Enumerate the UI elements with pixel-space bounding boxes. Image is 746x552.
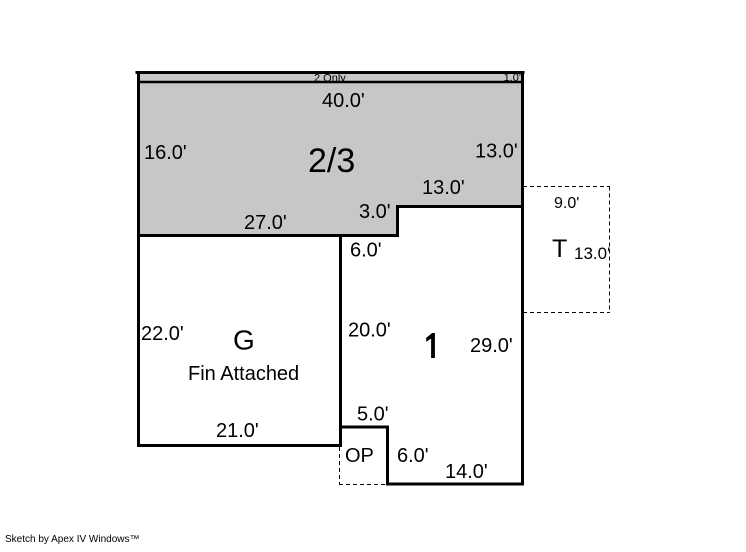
svg-text:22.0': 22.0'	[141, 323, 184, 345]
svg-text:40.0': 40.0'	[322, 90, 365, 112]
svg-text:13.0': 13.0'	[475, 141, 518, 163]
svg-text:T: T	[552, 235, 567, 263]
svg-text:9.0': 9.0'	[554, 195, 579, 212]
svg-text:16.0': 16.0'	[144, 142, 187, 164]
svg-text:20.0': 20.0'	[348, 320, 391, 342]
svg-text:3.0': 3.0'	[359, 201, 391, 223]
svg-text:Sketch by Apex IV Windows™: Sketch by Apex IV Windows™	[5, 534, 140, 545]
svg-text:6.0': 6.0'	[350, 240, 382, 262]
svg-text:OP: OP	[345, 445, 374, 467]
svg-text:13.0': 13.0'	[422, 177, 465, 199]
svg-text:Fin Attached: Fin Attached	[188, 363, 299, 385]
svg-text:29.0': 29.0'	[470, 335, 513, 357]
svg-text:5.0': 5.0'	[357, 404, 389, 426]
svg-text:6.0': 6.0'	[397, 445, 429, 467]
svg-text:21.0': 21.0'	[216, 420, 259, 442]
svg-text:27.0': 27.0'	[244, 212, 287, 234]
svg-text:2/3: 2/3	[308, 142, 355, 180]
svg-text:14.0': 14.0'	[445, 461, 488, 483]
svg-text:G: G	[233, 325, 255, 356]
svg-text:13.0': 13.0'	[574, 244, 610, 263]
